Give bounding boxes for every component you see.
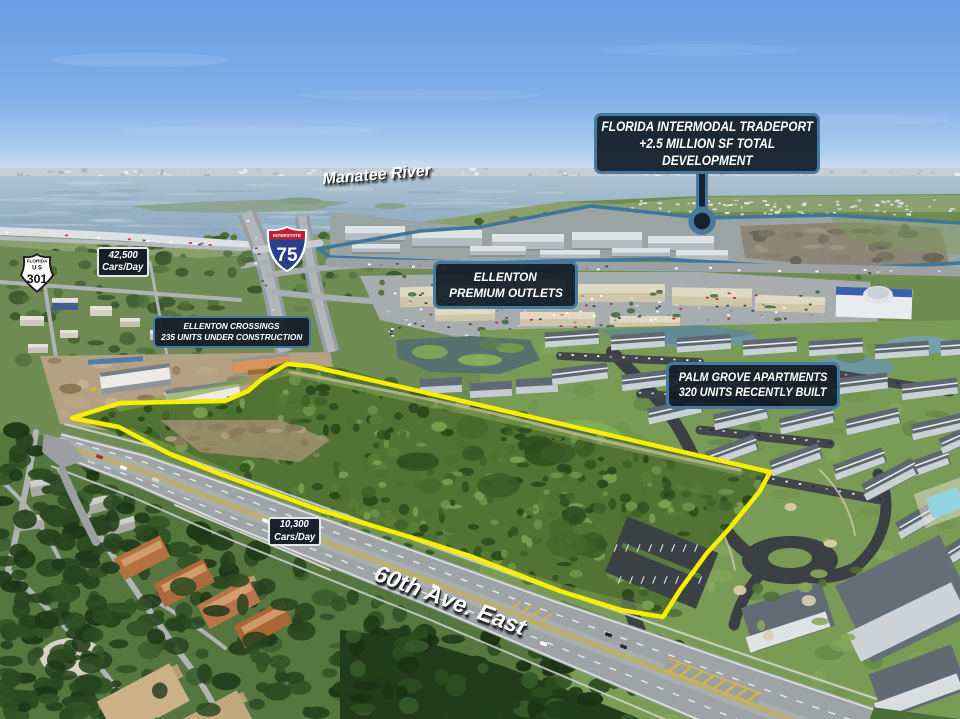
svg-text:INTERSTATE: INTERSTATE: [273, 233, 301, 238]
svg-text:U S: U S: [32, 265, 42, 271]
svg-text:301: 301: [27, 272, 48, 286]
svg-text:75: 75: [276, 245, 298, 266]
svg-text:FLORIDA: FLORIDA: [27, 259, 48, 264]
